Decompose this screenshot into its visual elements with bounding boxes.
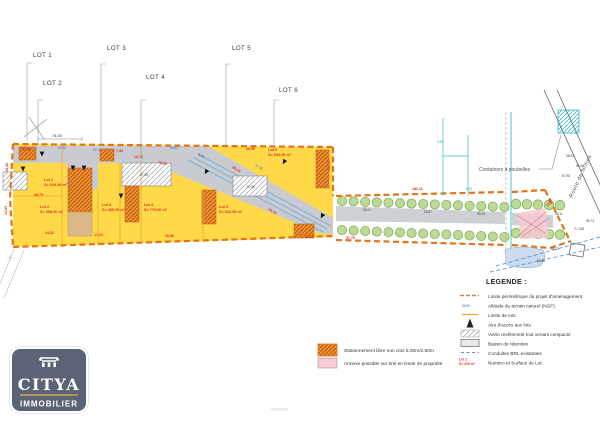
dimension-label: 66,56 xyxy=(246,147,255,151)
tree xyxy=(407,228,416,237)
note-annexe-label: Annexe possible sur 6ml en limite de pro… xyxy=(344,361,443,367)
elevation-label: 56.73 xyxy=(586,219,594,223)
lot-callout-label: LOT 4 xyxy=(146,74,165,81)
tree xyxy=(465,201,474,210)
bassin-retention xyxy=(505,247,545,268)
scale-mark xyxy=(270,408,288,411)
elevation-label: 55.43 xyxy=(477,212,485,216)
elevation-label: 57,98 xyxy=(140,173,148,177)
tree xyxy=(395,199,404,208)
tree xyxy=(522,200,532,210)
legend-lot-surface-symbol: S= 200 m² xyxy=(459,362,476,366)
elevation-label: 8,00 xyxy=(466,187,472,191)
elevation-label: 57.12 xyxy=(93,148,101,152)
dimension-label: 28,86 xyxy=(165,234,174,238)
elevation-label: 5,60 xyxy=(437,140,443,144)
legend-ngf-symbol: 56.55 xyxy=(462,304,470,308)
lot-name: Lot 5 xyxy=(268,148,277,152)
parking-area xyxy=(68,168,92,212)
top-dimension-value: 74,00 xyxy=(52,133,63,138)
parking-area xyxy=(100,149,114,161)
annexe-pink-area xyxy=(517,208,549,239)
tree xyxy=(453,230,462,239)
dimension-label: 48,75 xyxy=(34,193,43,197)
tree xyxy=(349,197,358,206)
tree xyxy=(337,196,346,205)
tree xyxy=(395,228,404,237)
legend-item-label: Conduites BRL existantes xyxy=(488,351,542,356)
tree xyxy=(442,200,451,209)
tree xyxy=(361,197,370,206)
legend-item-label: Limite périmétrique du projet d'aménagem… xyxy=(488,294,583,299)
citya-logo: CITYA IMMOBILIER xyxy=(10,347,88,413)
tree xyxy=(477,231,486,240)
tree xyxy=(511,228,521,238)
lot-callout-label: LOT 2 xyxy=(43,80,62,87)
elevation-label: 57,86 xyxy=(247,185,255,189)
annexe-zone xyxy=(68,212,92,236)
lot-name: Lot 6 xyxy=(219,205,228,209)
elevation-label: 57.48 xyxy=(58,146,66,150)
dimension-label: 23,78 xyxy=(327,161,331,170)
note-parking-symbol xyxy=(318,344,337,356)
tree xyxy=(419,229,428,238)
tree xyxy=(337,225,346,234)
legend-lot-number-symbol: Lot 1 xyxy=(459,358,467,362)
tree xyxy=(555,230,565,240)
tree xyxy=(384,198,393,207)
dimension-label: 7,30 xyxy=(116,149,123,153)
tree xyxy=(372,198,381,207)
elevation-label: 56.95 xyxy=(537,259,545,263)
tree xyxy=(488,232,497,241)
lot-surface: S= 770,00 m² xyxy=(144,208,168,212)
lot-surface: S= 519,36 m² xyxy=(44,183,68,187)
tree xyxy=(465,231,474,240)
survey-cross xyxy=(24,117,47,139)
lot-callouts: LOT 1LOT 2LOT 3LOT 4LOT 5LOT 6 xyxy=(27,45,298,158)
parking-area xyxy=(125,186,139,222)
dimension-label: 12,28 xyxy=(21,147,30,151)
elevation-label: 57.98 xyxy=(562,174,570,178)
lot-surface: S= 603,00 m² xyxy=(268,153,292,157)
legend-item-label: Aire d'accès aux lots xyxy=(488,323,531,328)
legend-item-label: Bassin de rétention xyxy=(488,342,529,347)
lot-surface: S= 268,00 m² xyxy=(40,210,64,214)
legend-access-arrow-symbol xyxy=(467,319,474,328)
logo-subtitle-text: IMMOBILIER xyxy=(20,400,78,409)
callout-leader xyxy=(101,64,106,146)
legend-item-label: Altitude du terrain naturel (NGF) xyxy=(488,304,555,309)
dimension-label: 13,93 xyxy=(4,206,8,215)
lot-surface: S= 400,00 m² xyxy=(102,208,126,212)
tree xyxy=(442,230,451,239)
legend-item-label: Limite de lots xyxy=(488,313,516,318)
lot-name: Lot 3 xyxy=(102,203,111,207)
tree xyxy=(555,200,565,210)
route-de-nimes-label: Route de Nîmes xyxy=(568,154,593,199)
elevation-label: 56.21 xyxy=(363,208,371,212)
tree xyxy=(477,202,486,211)
tree xyxy=(372,227,381,236)
legend-voirie-symbol xyxy=(461,330,479,337)
containers-area xyxy=(558,110,579,133)
legend-item-label: Voirie revêtement tout venant compacté xyxy=(488,332,571,337)
elevation-label: 58.03 xyxy=(566,154,574,158)
logo-brand-text: CITYA xyxy=(18,375,80,394)
lot-callout-label: LOT 5 xyxy=(232,45,251,52)
note-annexe-symbol xyxy=(318,358,337,368)
tree xyxy=(419,199,428,208)
lot-name: Lot 2 xyxy=(40,205,49,209)
lot-callout-label: LOT 1 xyxy=(33,52,52,59)
callout-leader xyxy=(274,100,279,150)
dimension-label: 41,11 xyxy=(305,235,314,239)
tree xyxy=(500,202,509,211)
lot-surface: S= 622,00 m² xyxy=(219,210,243,214)
elevation-label: 58.11 xyxy=(555,212,563,216)
containers-label: Containers à poubelles xyxy=(479,167,531,173)
containers-leader xyxy=(539,135,561,169)
lot-callout-label: LOT 6 xyxy=(279,87,298,94)
tree xyxy=(533,200,543,210)
site-plan-drawing: 74,00 Containers à poubelles Route de Nî… xyxy=(0,0,600,424)
legend-item-label: Numéro et Surface de Lot xyxy=(488,361,542,366)
elevation-label: 56.46 xyxy=(576,164,584,168)
lot-name: Lot 4 xyxy=(144,203,154,207)
callout-leader xyxy=(226,64,231,147)
elevation-label: Y= 318 xyxy=(574,227,584,231)
legend: LEGENDE : Limite périmétrique du projet … xyxy=(459,279,583,366)
dimension-label: 57,76 xyxy=(346,236,355,240)
tree xyxy=(407,199,416,208)
tree xyxy=(511,199,521,209)
lot-callout-label: LOT 3 xyxy=(107,45,126,52)
elevation-label: 56.92 xyxy=(170,146,178,150)
tree xyxy=(488,202,497,211)
hatched-building-box xyxy=(3,172,27,190)
survey-lines xyxy=(443,118,468,196)
road-continuation-lines xyxy=(0,249,24,298)
lot-name: Lot 1 xyxy=(44,178,53,182)
note-parking-label: Stationnement libre non clos 5.00m/2.50m xyxy=(344,348,434,354)
site-plan-page: 74,00 Containers à poubelles Route de Nî… xyxy=(0,0,600,424)
tree xyxy=(349,226,358,235)
dimension-label: 17,23 xyxy=(94,233,103,237)
tree xyxy=(384,227,393,236)
dimension-label: 13,72 xyxy=(134,155,143,159)
callout-leader xyxy=(27,63,32,141)
tree xyxy=(500,232,509,241)
parking-area xyxy=(202,190,216,224)
tree xyxy=(361,226,370,235)
elevation-label: 55.87 xyxy=(424,210,432,214)
tree xyxy=(453,201,462,210)
dimension-label: 14,32 xyxy=(5,163,9,172)
legend-title: LEGENDE : xyxy=(486,279,527,286)
tree xyxy=(430,200,439,209)
tree xyxy=(430,229,439,238)
elevation-label: 58.23 xyxy=(551,247,559,251)
legend-bassin-symbol xyxy=(461,340,479,347)
dimension-label: 182,11 xyxy=(412,187,423,191)
dimension-label: 24,32 xyxy=(45,231,54,235)
parking-notes: Stationnement libre non clos 5.00m/2.50m… xyxy=(318,344,443,368)
